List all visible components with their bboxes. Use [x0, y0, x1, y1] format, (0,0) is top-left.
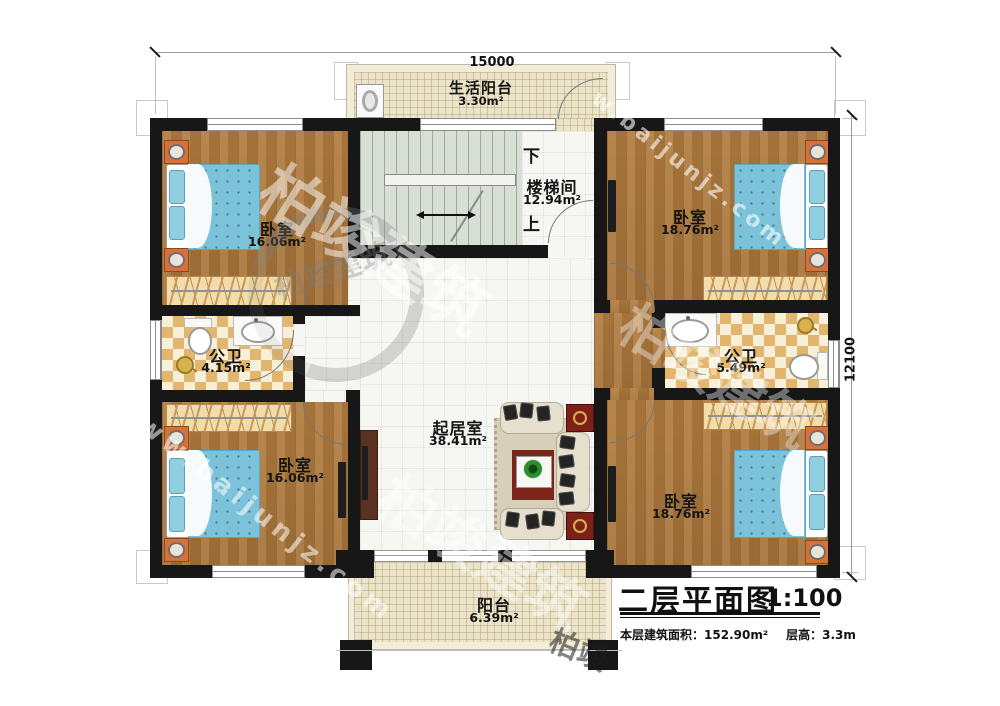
wall-corner-block [586, 550, 614, 578]
wall-segment [602, 118, 664, 131]
tv [362, 446, 368, 500]
floor-area-info: 本层建筑面积：152.90m² [620, 626, 768, 643]
extension-line [155, 56, 156, 114]
sofa-cushion [559, 435, 576, 450]
wardrobe [166, 276, 292, 306]
room-area-stairwell: 12.94m² [512, 192, 592, 207]
dimension-value-top: 15000 [462, 55, 522, 70]
shower-head [797, 317, 814, 334]
side-table [566, 404, 594, 432]
tv [608, 466, 616, 522]
hallway-right-floor [594, 313, 652, 388]
floor-height-info: 层高：3.3m [786, 626, 856, 643]
faucet [686, 316, 690, 320]
door-mullion [498, 550, 512, 562]
sliding-glass-door [374, 550, 586, 562]
pillow [169, 496, 185, 532]
wall-segment [652, 313, 665, 328]
nightstand [164, 140, 189, 164]
wall-segment [293, 305, 305, 324]
sofa-cushion [519, 402, 533, 418]
wall-segment [150, 390, 302, 402]
window [207, 118, 303, 131]
plan-scale: 1:100 [766, 584, 842, 612]
stair-arrow-right [468, 211, 476, 219]
stair-treads [360, 131, 522, 245]
door-mullion [428, 550, 442, 562]
pillow [169, 458, 185, 494]
stair-down-label: 下 [520, 142, 544, 167]
pillow [809, 206, 825, 240]
wall-segment [303, 118, 420, 131]
floor-area-value: 152.90m² [704, 628, 768, 642]
toilet-bowl [789, 354, 819, 380]
nightstand [805, 426, 830, 450]
floor-area-label: 本层建筑面积： [620, 628, 704, 642]
window [212, 565, 305, 578]
door-opening-patch [348, 258, 360, 305]
wall-segment [828, 388, 840, 578]
wall-segment [150, 118, 162, 320]
door-opening-patch [293, 324, 305, 356]
dimension-line-top [155, 52, 836, 53]
wall-segment [348, 245, 548, 258]
door-opening-patch [302, 390, 346, 402]
pillow [169, 170, 185, 204]
side-table [566, 512, 594, 540]
shower-head [176, 356, 194, 374]
pillow [809, 170, 825, 204]
stair-arrow-left [416, 211, 424, 219]
room-area-bedroom-bottom-left: 16.06m² [245, 470, 345, 485]
room-area-balcony: 6.39m² [444, 610, 544, 625]
sofa-cushion [558, 491, 574, 505]
nightstand [164, 248, 189, 272]
room-area-bath-right: 5.49m² [710, 360, 772, 375]
sofa-cushion [505, 511, 520, 528]
wall-segment [654, 300, 840, 313]
dimension-value-right: 12100 [844, 330, 859, 390]
door-opening-patch [652, 328, 665, 368]
wall-segment [348, 118, 360, 258]
room-area-life-balcony: 3.30m² [431, 94, 531, 108]
room-area-bedroom-top-right: 18.76m² [640, 222, 740, 237]
sofa-cushion [525, 513, 540, 530]
pillow [809, 494, 825, 530]
wall-segment [654, 388, 840, 400]
balcony-column [340, 640, 372, 670]
faucet [254, 318, 258, 322]
wall-segment [594, 300, 610, 313]
nightstand [805, 248, 830, 272]
nightstand [164, 426, 189, 450]
window [664, 118, 763, 131]
title-underline-thin [620, 617, 820, 618]
floor-height-label: 层高： [786, 628, 822, 642]
extension-line [835, 56, 836, 114]
nightstand [164, 538, 189, 562]
stair-direction-line [424, 214, 468, 216]
stair-handrail [384, 174, 516, 186]
pillow [169, 206, 185, 240]
floor-height-value: 3.3m [822, 628, 856, 642]
sofa-cushion [541, 510, 555, 526]
room-area-bath-left: 4.15m² [195, 360, 257, 375]
title-info-row: 本层建筑面积：152.90m² 层高：3.3m [620, 626, 856, 643]
nightstand [805, 140, 830, 164]
room-area-bedroom-top-left: 16.06m² [237, 234, 317, 249]
bed-sheet [780, 450, 804, 536]
sofa-cushion [559, 473, 576, 488]
wall-segment [817, 565, 840, 578]
room-area-living-room: 38.41m² [408, 433, 508, 448]
wall-segment [150, 380, 162, 578]
room-area-bedroom-bottom-right: 18.76m² [631, 506, 731, 521]
title-underline [620, 612, 820, 615]
wall-segment [594, 118, 607, 313]
balcony-rail-line [336, 650, 622, 651]
sofa-cushion [558, 454, 575, 469]
sofa-cushion [536, 405, 550, 421]
floor-plan: 生活阳台 3.30m² 下 楼梯间 12.94m² 上 卧室 16.06m² 卧… [0, 0, 1000, 706]
wall-segment [150, 305, 360, 316]
washing-machine [356, 84, 384, 118]
window [150, 320, 162, 380]
hallway-left-floor [305, 316, 360, 390]
wall-segment [652, 368, 665, 388]
wall-segment [150, 565, 212, 578]
balcony-column [588, 640, 618, 670]
wall-corner-block [336, 550, 374, 578]
door-opening-patch [610, 388, 654, 400]
window [420, 118, 556, 131]
pillow [809, 456, 825, 492]
wall-segment [594, 388, 610, 400]
stair-up-label: 上 [520, 210, 544, 235]
window [828, 340, 840, 388]
potted-plant [522, 458, 544, 480]
nightstand [805, 540, 830, 564]
tv [608, 180, 616, 232]
bed-sheet [780, 164, 804, 248]
